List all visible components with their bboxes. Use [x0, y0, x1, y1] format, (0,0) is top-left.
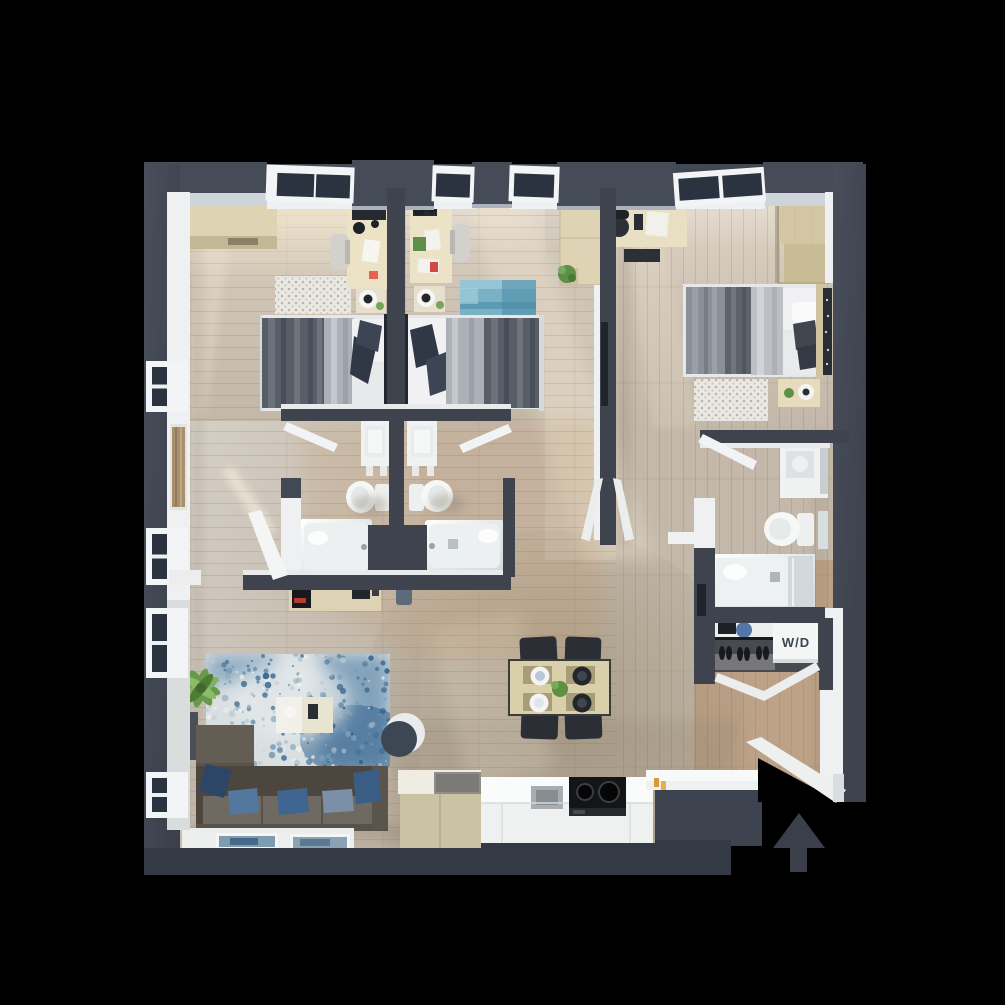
- svg-text:W/D: W/D: [782, 635, 810, 650]
